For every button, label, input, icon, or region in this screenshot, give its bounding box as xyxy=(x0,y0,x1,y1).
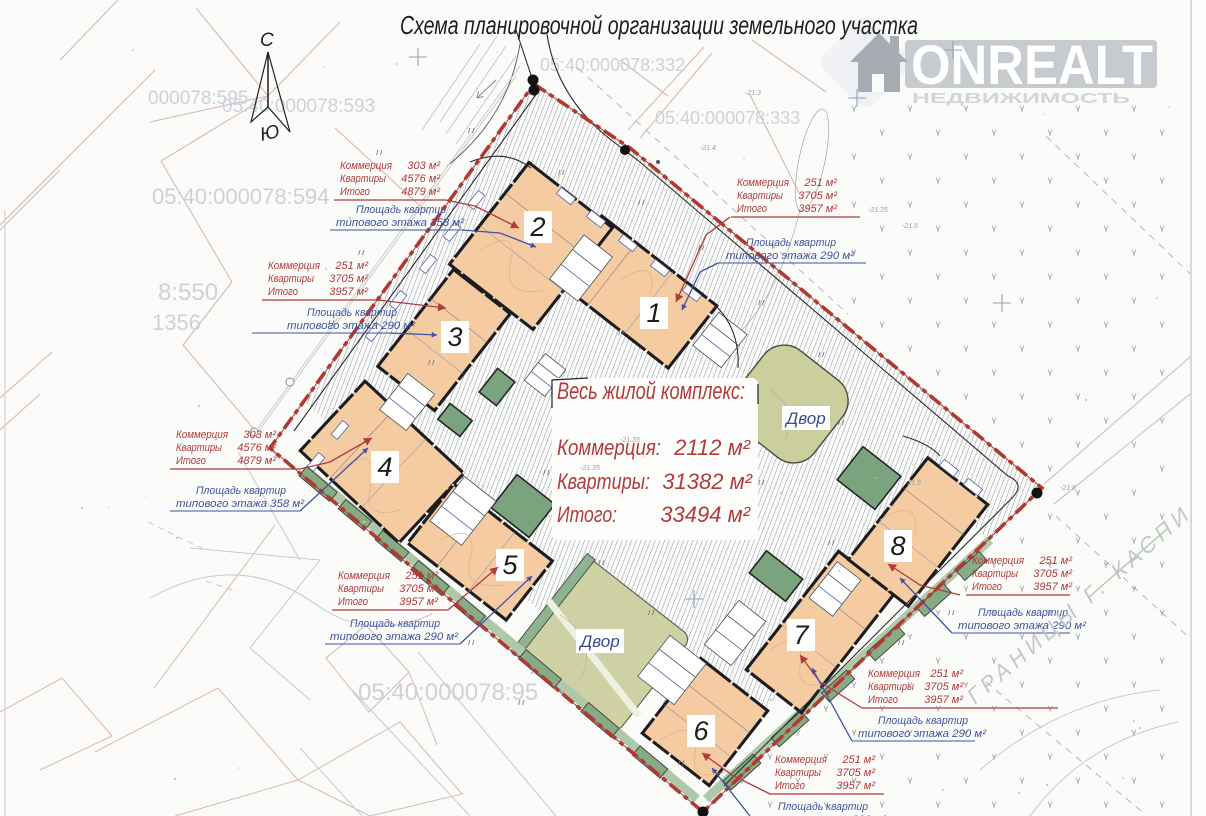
svg-text:Квартиры: Квартиры xyxy=(268,273,314,285)
svg-text:Квартиры: Квартиры xyxy=(338,583,384,595)
svg-text:8: 8 xyxy=(890,531,905,561)
svg-text:303 м²: 303 м² xyxy=(407,160,440,172)
svg-text:С: С xyxy=(260,30,274,51)
svg-text:4576 м²: 4576 м² xyxy=(237,442,276,454)
svg-text:4879 м²: 4879 м² xyxy=(401,186,440,198)
svg-text:-21.4: -21.4 xyxy=(700,145,716,152)
svg-text:типового этажа 290 м²: типового этажа 290 м² xyxy=(330,631,458,643)
svg-text:Итого:: Итого: xyxy=(557,502,617,527)
svg-text:7: 7 xyxy=(793,620,809,650)
svg-text:типового этажа 290 м²: типового этажа 290 м² xyxy=(726,250,854,262)
svg-text:ONREALT: ONREALT xyxy=(911,33,1153,96)
svg-text:303 м²: 303 м² xyxy=(243,429,276,441)
svg-text:05:40:000078:332: 05:40:000078:332 xyxy=(540,55,685,75)
svg-text:Площадь квартир: Площадь квартир xyxy=(746,237,836,249)
svg-text:1356: 1356 xyxy=(152,310,201,335)
svg-text:251 м²: 251 м² xyxy=(404,570,438,582)
svg-text:Весь жилой комплекс:: Весь жилой комплекс: xyxy=(557,378,745,405)
svg-text:Итого: Итого xyxy=(268,286,298,298)
svg-text:Двор: Двор xyxy=(578,632,619,651)
svg-text:Квартиры: Квартиры xyxy=(340,173,386,185)
svg-text:251 м²: 251 м² xyxy=(803,177,837,189)
svg-text:251 м²: 251 м² xyxy=(334,260,368,272)
svg-text:Коммерция: Коммерция xyxy=(737,177,789,189)
svg-text:4: 4 xyxy=(377,452,392,482)
svg-text:Квартиры: Квартиры xyxy=(737,190,783,202)
svg-text:типового этажа 290 м²: типового этажа 290 м² xyxy=(287,320,415,332)
svg-text:05:40:000078:95: 05:40:000078:95 xyxy=(358,679,538,706)
svg-text:Квартиры: Квартиры xyxy=(176,442,222,454)
svg-text:Итого: Итого xyxy=(176,455,206,467)
svg-text:3957 м²: 3957 м² xyxy=(798,203,837,215)
svg-text:Итого: Итого xyxy=(338,596,368,608)
svg-text:1: 1 xyxy=(646,298,661,328)
svg-text:типового этажа 358 м²: типового этажа 358 м² xyxy=(176,498,304,510)
svg-text:31382 м²: 31382 м² xyxy=(662,469,752,494)
svg-text:Схема планировочной организаци: Схема планировочной организации земельно… xyxy=(400,10,918,40)
svg-text:05:40:000078:333: 05:40:000078:333 xyxy=(655,108,800,128)
svg-text:-21.35: -21.35 xyxy=(620,437,640,444)
svg-text:4576 м²: 4576 м² xyxy=(401,173,440,185)
svg-text:Коммерция: Коммерция xyxy=(338,570,390,582)
svg-text:Квартиры:: Квартиры: xyxy=(557,469,650,494)
svg-text:4879 м²: 4879 м² xyxy=(237,455,276,467)
svg-text:3957 м²: 3957 м² xyxy=(329,286,368,298)
svg-text:3957 м²: 3957 м² xyxy=(399,596,438,608)
svg-text:-21.9: -21.9 xyxy=(905,480,921,487)
svg-text:Площадь квартир: Площадь квартир xyxy=(196,485,286,497)
svg-text:3705 м²: 3705 м² xyxy=(399,583,438,595)
svg-text:типового этажа 358 м²: типового этажа 358 м² xyxy=(336,217,464,229)
svg-text:2112 м²: 2112 м² xyxy=(673,435,751,460)
svg-text:05:40:000078:594: 05:40:000078:594 xyxy=(152,184,329,209)
svg-text:2: 2 xyxy=(529,212,545,242)
svg-text:Итого: Итого xyxy=(340,186,370,198)
svg-text:33494 м²: 33494 м² xyxy=(660,502,750,527)
svg-text:-21.3: -21.3 xyxy=(745,90,761,97)
svg-text:Площадь квартир: Площадь квартир xyxy=(350,618,440,630)
svg-text:-21.35: -21.35 xyxy=(580,465,600,472)
svg-text:3: 3 xyxy=(447,322,462,352)
svg-text:Коммерция: Коммерция xyxy=(268,260,320,272)
svg-text:3705 м²: 3705 м² xyxy=(329,273,368,285)
svg-text:Площадь квартир: Площадь квартир xyxy=(307,307,397,319)
svg-text:6: 6 xyxy=(693,716,709,746)
svg-text:3705 м²: 3705 м² xyxy=(798,190,837,202)
svg-text:8:550: 8:550 xyxy=(158,279,218,306)
svg-text:05:40:000078:593: 05:40:000078:593 xyxy=(222,96,375,117)
svg-text:Коммерция:: Коммерция: xyxy=(557,435,661,460)
svg-text:5: 5 xyxy=(502,550,518,580)
svg-text:Коммерция: Коммерция xyxy=(176,429,228,441)
svg-text:Коммерция: Коммерция xyxy=(340,160,392,172)
svg-text:Площадь квартир: Площадь квартир xyxy=(356,204,446,216)
svg-text:Итого: Итого xyxy=(737,203,767,215)
svg-text:Двор: Двор xyxy=(784,409,825,428)
